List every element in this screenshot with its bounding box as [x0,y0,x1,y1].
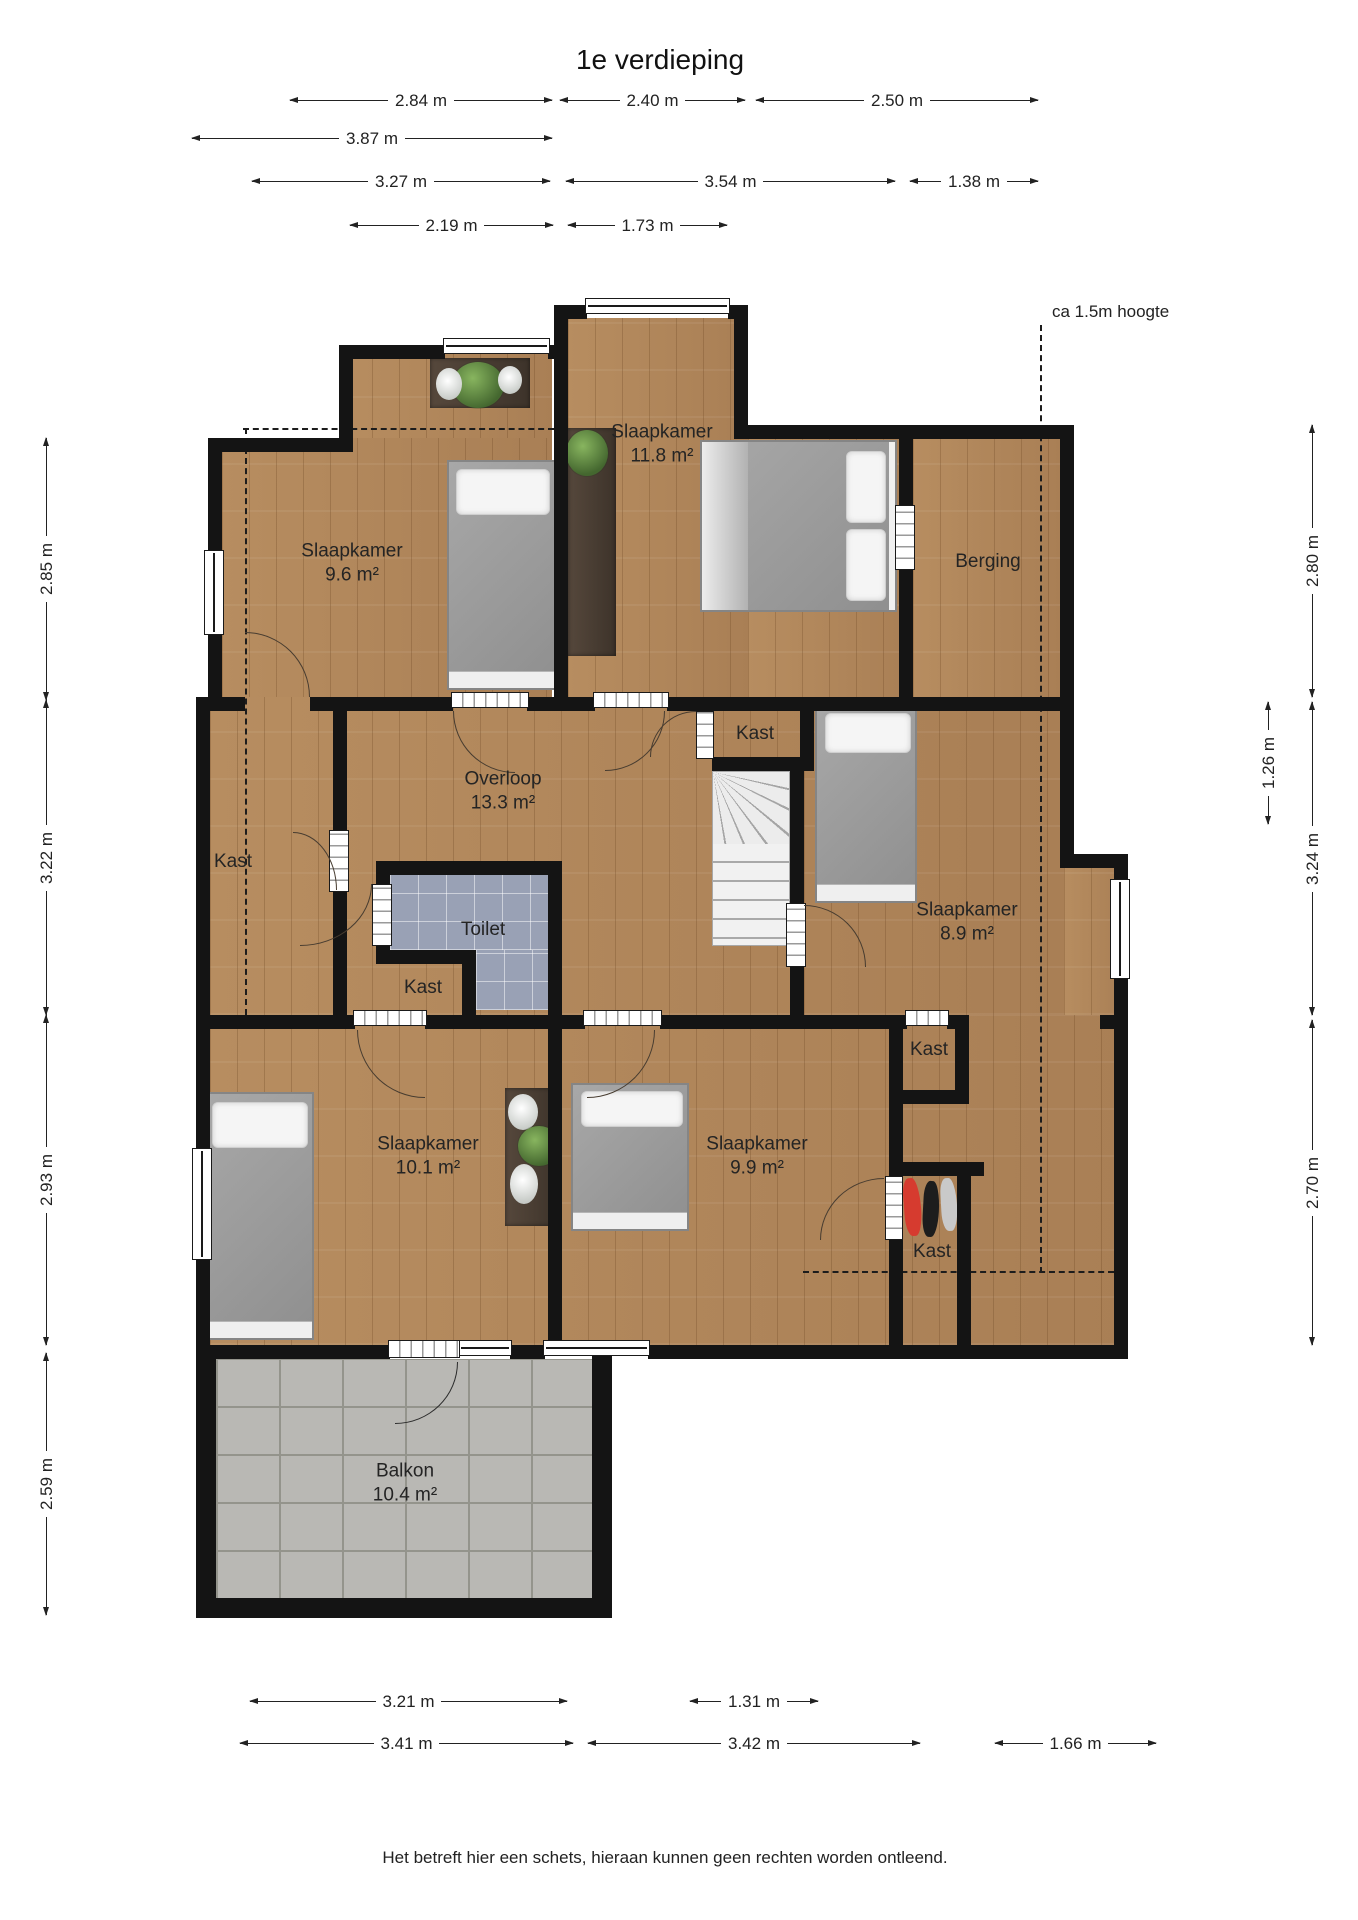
flowers-icon [498,366,522,394]
floor-toilet-lower [476,950,548,1010]
wall-segment [376,950,476,964]
wall-segment [896,1345,1128,1359]
dimension-left: 2.59 m [46,1353,47,1615]
dimension-left: 2.93 m [46,1015,47,1345]
room-label-slaapkamer-11-8: Slaapkamer11.8 m² [611,420,712,468]
bed-single [571,1083,689,1231]
wall-segment [957,1162,971,1345]
door-threshold [388,1340,460,1358]
page-title: 1e verdieping [460,44,860,76]
wall-segment [527,697,595,711]
window [543,1340,650,1356]
wall-segment [510,1345,545,1359]
dimension-bottom: 3.41 m [240,1743,573,1744]
dimension-top: 3.27 m [252,181,550,182]
wall-segment [196,1015,355,1029]
room-label-kast-right: Kast [910,1038,948,1062]
dimension-left: 2.85 m [46,438,47,700]
height-annotation: ca 1.5m hoogte [1052,302,1169,322]
bed-double [700,440,897,612]
wall-segment [196,1258,210,1345]
flowers-icon [508,1094,538,1130]
room-label-slaapkamer-10-1: Slaapkamer10.1 m² [377,1132,478,1180]
dimension-right: 3.24 m [1312,702,1313,1015]
wall-segment [310,697,453,711]
door-threshold [885,1176,903,1240]
bed-single [815,703,917,903]
wall-segment [790,771,804,905]
room-label-kast-top: Kast [736,722,774,746]
wall-segment [648,1345,896,1359]
wall-segment [660,1015,907,1029]
disclaimer-text: Het betreft hier een schets, hieraan kun… [165,1848,1165,1868]
height-line-left [245,428,247,1015]
wall-segment [462,950,476,1015]
wall-segment [339,345,445,359]
wall-segment [899,439,913,505]
wall-segment [1060,425,1074,868]
window [443,338,550,354]
room-label-berging: Berging [955,550,1021,574]
dimension-top: 2.40 m [560,100,745,101]
window [204,550,224,635]
room-label-kast-left: Kast [214,850,252,874]
dimension-right: 2.80 m [1312,425,1313,697]
room-label-overloop: Overloop13.3 m² [464,767,541,815]
dimension-top: 1.38 m [910,181,1038,182]
dimension-right-inner: 1.26 m [1268,702,1269,824]
bed-single [447,460,557,690]
wall-segment [1100,1015,1128,1029]
wall-segment [712,757,814,771]
dimension-top: 3.54 m [566,181,895,182]
wall-segment [790,967,804,1015]
dimension-top: 2.19 m [350,225,553,226]
wall-segment [667,697,1074,711]
door-threshold [451,692,529,708]
room-label-slaapkamer-8-9: Slaapkamer8.9 m² [916,898,1017,946]
window [458,1340,512,1356]
plant-icon [566,430,608,476]
dimension-bottom: 3.21 m [250,1701,567,1702]
wall-segment [800,711,814,757]
wall-segment [548,861,562,1015]
door-threshold [895,505,915,570]
wall-segment [548,1015,562,1345]
wall-segment [196,1345,390,1359]
wall-segment [889,1240,903,1345]
window [192,1148,212,1260]
door-threshold [593,692,669,708]
flowers-icon [436,368,462,400]
dimension-top: 1.73 m [568,225,727,226]
window [1110,879,1130,979]
wall-segment [955,1015,969,1090]
room-label-balkon: Balkon10.4 m² [373,1459,437,1507]
room-label-kast-bottom: Kast [913,1240,951,1264]
wall-segment [889,1090,969,1104]
bed-single [202,1092,314,1340]
wall-segment [734,425,1074,439]
wall-segment [339,345,353,452]
door-threshold [372,884,392,946]
room-label-slaapkamer-9-6: Slaapkamer9.6 m² [301,539,402,587]
door-threshold [696,711,714,759]
room-label-toilet: Toilet [461,918,505,942]
height-line-right [1040,325,1042,1273]
dimension-top: 3.87 m [192,138,552,139]
wall-segment [734,305,748,439]
staircase [712,771,790,946]
wall-segment [196,697,210,1150]
wall-segment [376,861,562,875]
wall-segment [196,1345,216,1618]
wall-segment [1114,854,1128,879]
door-threshold [786,903,806,967]
dimension-bottom: 3.42 m [588,1743,920,1744]
wall-segment [196,697,245,711]
wall-segment [208,438,222,550]
wall-segment [196,1598,612,1618]
flowers-icon [510,1164,538,1204]
wall-segment [899,570,913,697]
dimension-top: 2.84 m [290,100,552,101]
wall-segment [592,1345,612,1618]
room-label-kast-toilet: Kast [404,976,442,1000]
wall-segment [208,438,353,452]
floorplan-canvas: 1e verdieping [0,0,1358,1920]
dimension-bottom: 1.66 m [995,1743,1156,1744]
door-threshold [905,1010,949,1026]
door-threshold [583,1010,662,1026]
door-threshold [353,1010,427,1026]
wall-segment [208,635,222,700]
room-label-slaapkamer-9-9: Slaapkamer9.9 m² [706,1132,807,1180]
wall-segment [554,305,568,700]
wall-segment [1114,979,1128,1359]
dimension-left: 3.22 m [46,700,47,1015]
dimension-top: 2.50 m [756,100,1038,101]
window [585,298,730,314]
dimension-bottom: 1.31 m [690,1701,818,1702]
wall-segment [554,305,587,319]
dimension-right: 2.70 m [1312,1020,1313,1345]
height-line-top-left [243,428,554,430]
wall-segment [333,697,347,832]
